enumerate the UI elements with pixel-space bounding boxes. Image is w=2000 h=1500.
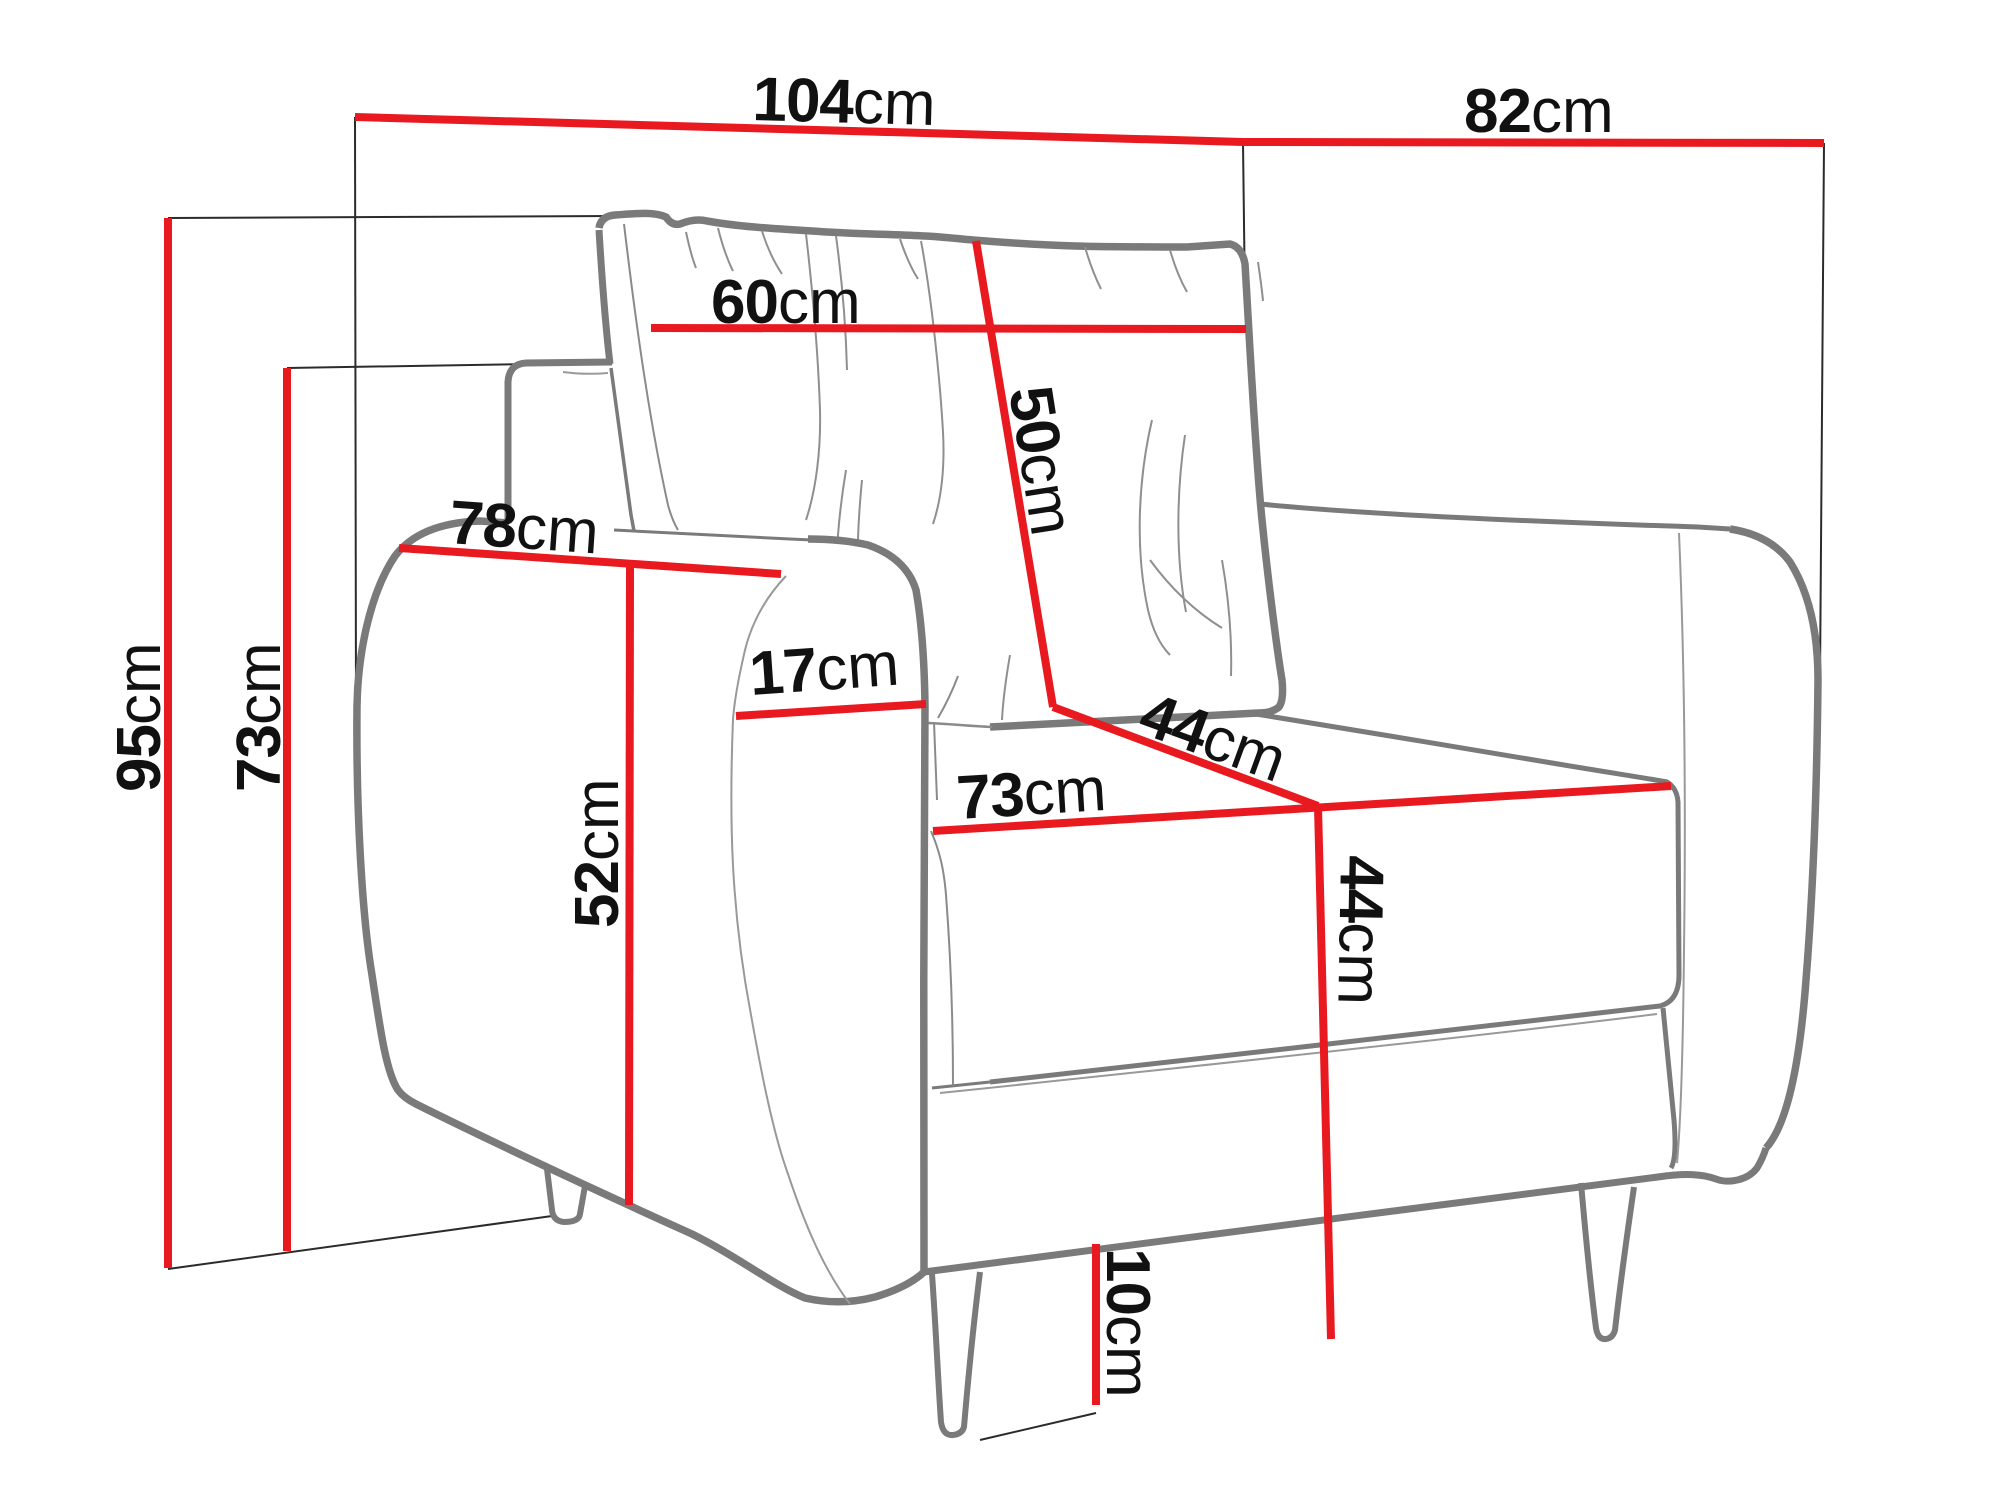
svg-text:82cm: 82cm — [1464, 77, 1614, 146]
svg-text:73cm: 73cm — [225, 642, 294, 792]
svg-text:60cm: 60cm — [711, 268, 861, 337]
svg-text:44cm: 44cm — [1324, 855, 1396, 1006]
svg-text:104cm: 104cm — [752, 65, 937, 139]
svg-text:73cm: 73cm — [955, 755, 1109, 833]
svg-text:78cm: 78cm — [447, 488, 601, 567]
svg-text:95cm: 95cm — [105, 642, 174, 792]
svg-text:52cm: 52cm — [563, 778, 632, 928]
svg-text:17cm: 17cm — [747, 630, 901, 709]
svg-text:10cm: 10cm — [1093, 1248, 1162, 1398]
